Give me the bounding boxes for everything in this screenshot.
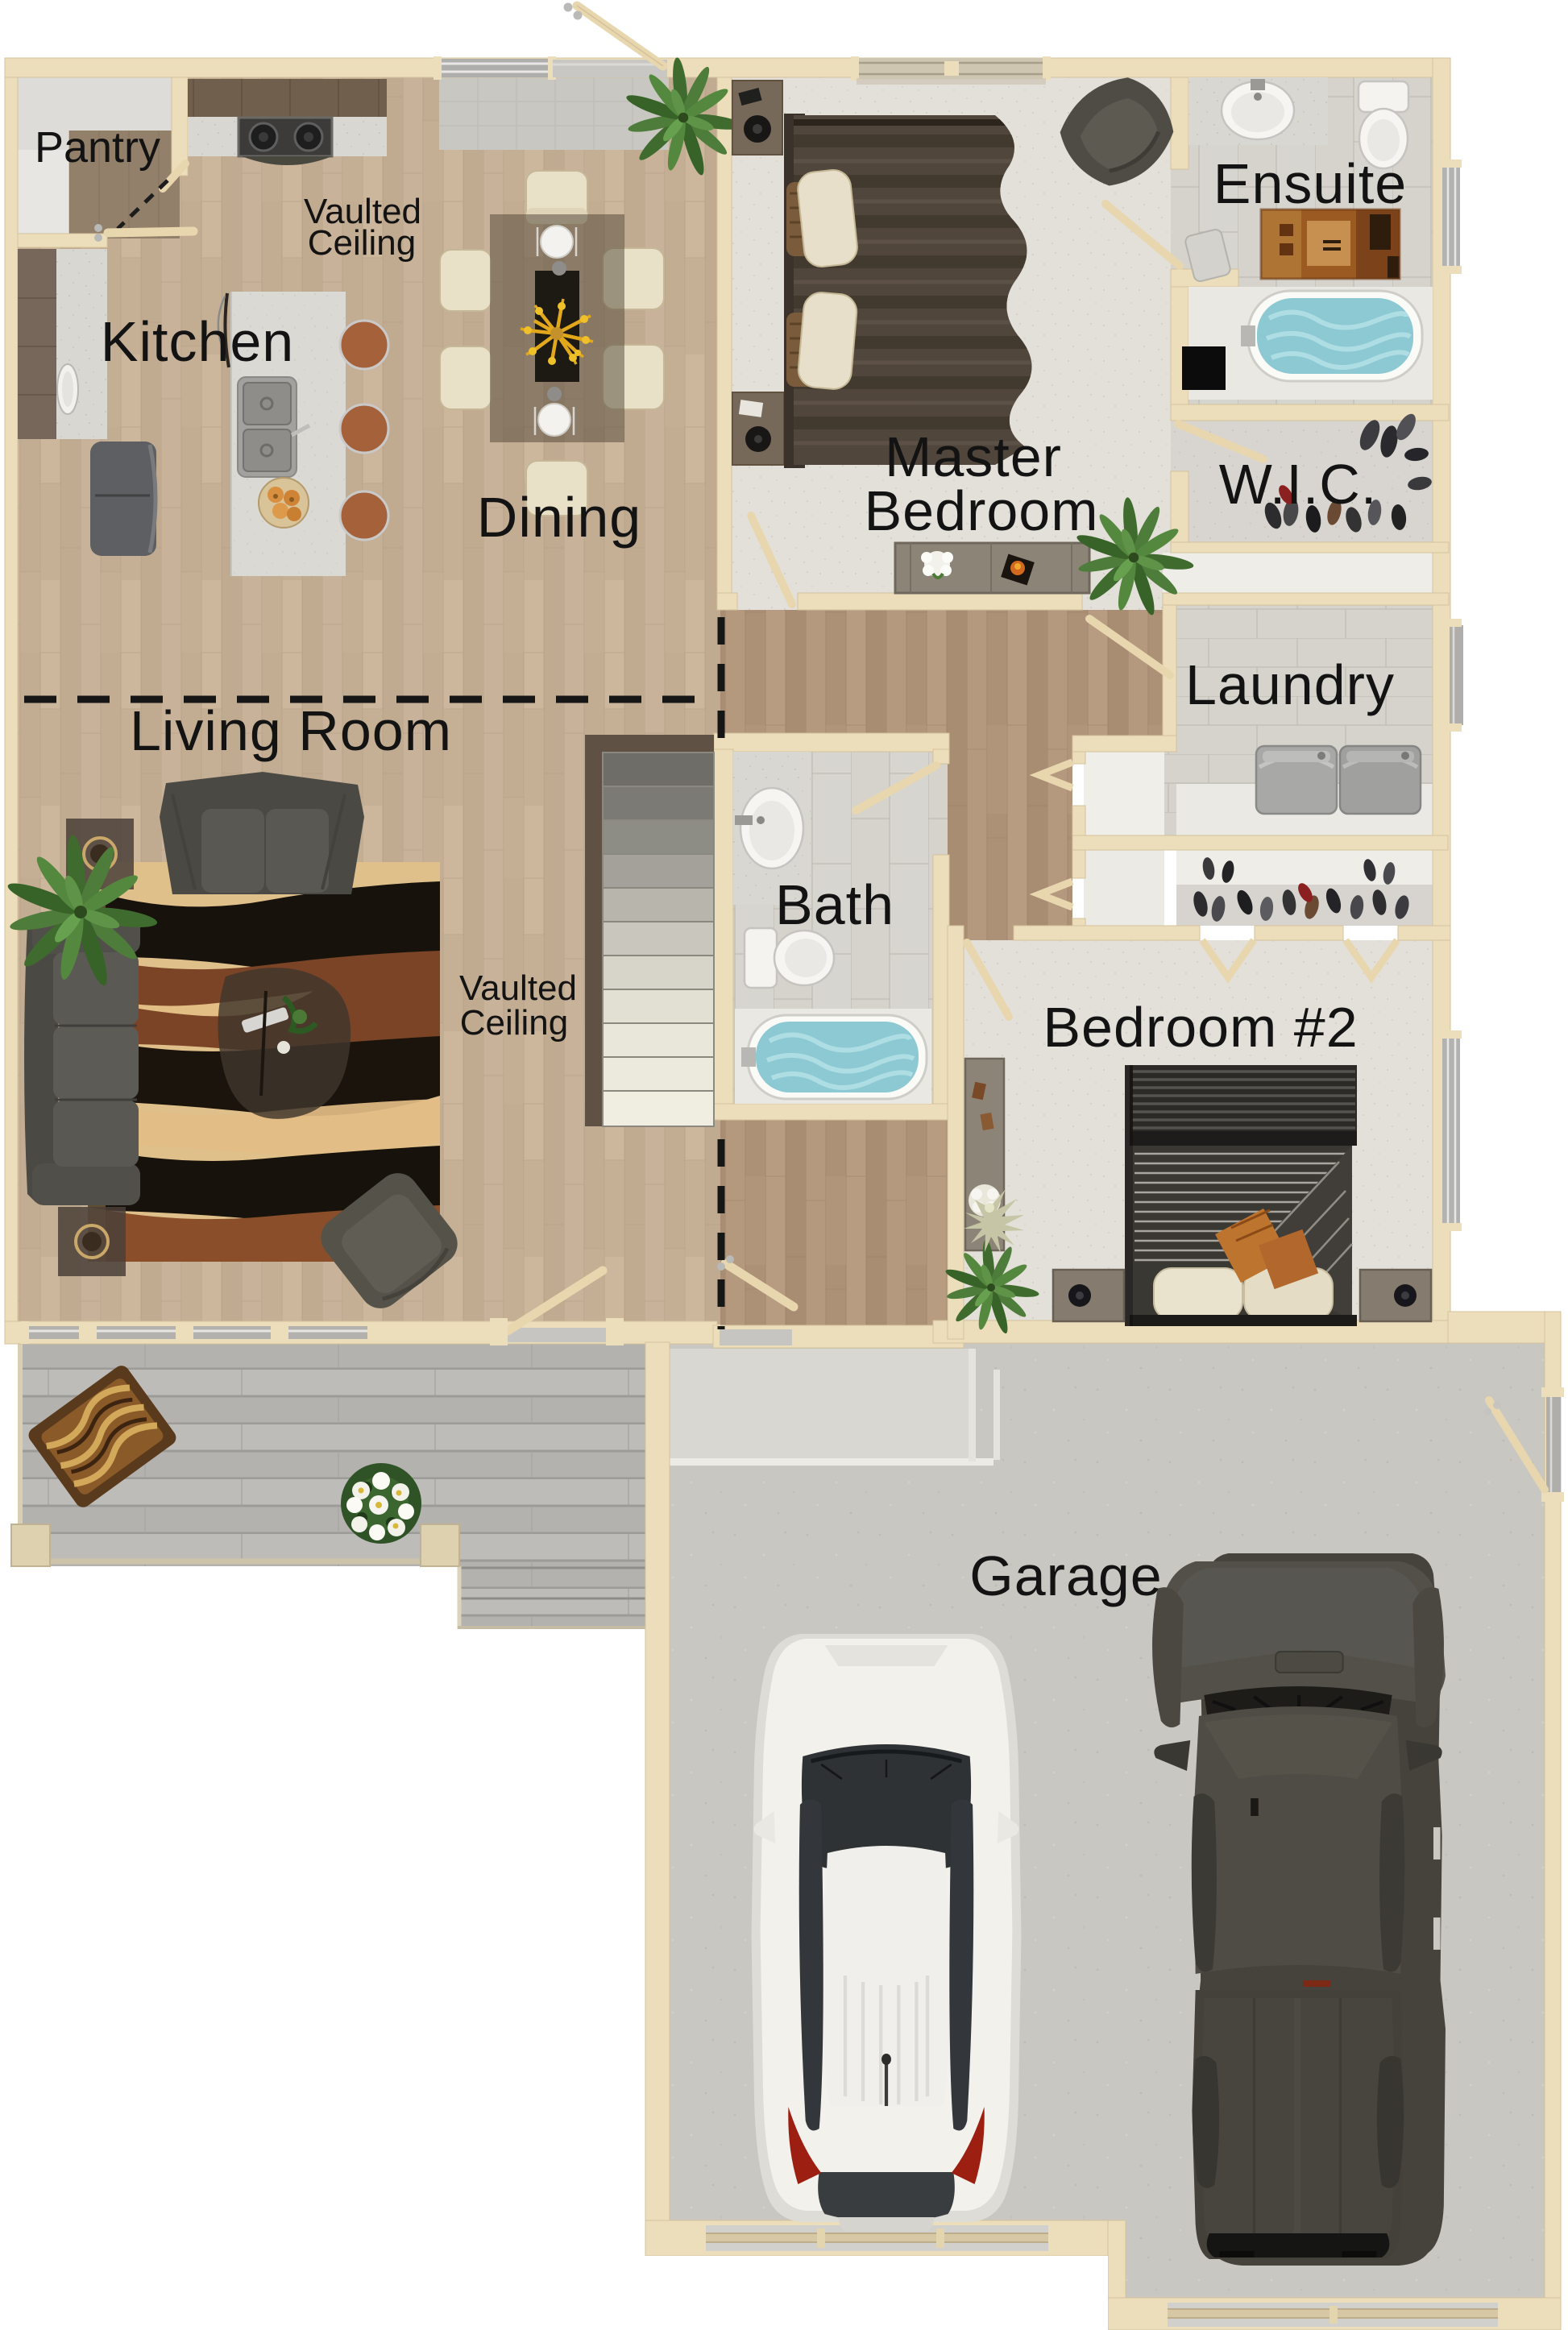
svg-text:Bath: Bath <box>775 873 894 936</box>
svg-text:Ensuite: Ensuite <box>1213 152 1407 215</box>
svg-text:Bedroom: Bedroom <box>864 479 1098 542</box>
svg-text:Kitchen: Kitchen <box>101 310 294 373</box>
svg-text:W.I.C.: W.I.C. <box>1219 453 1378 516</box>
svg-text:Ceiling: Ceiling <box>308 223 417 263</box>
svg-text:Dining: Dining <box>477 486 641 549</box>
svg-text:Garage: Garage <box>969 1544 1162 1607</box>
svg-text:Living Room: Living Room <box>130 699 452 762</box>
svg-text:Pantry: Pantry <box>35 123 160 172</box>
svg-text:Laundry: Laundry <box>1185 653 1395 716</box>
svg-text:Vaulted: Vaulted <box>459 968 577 1008</box>
svg-text:Ceiling: Ceiling <box>460 1003 569 1043</box>
svg-text:Bedroom #2: Bedroom #2 <box>1043 996 1358 1059</box>
